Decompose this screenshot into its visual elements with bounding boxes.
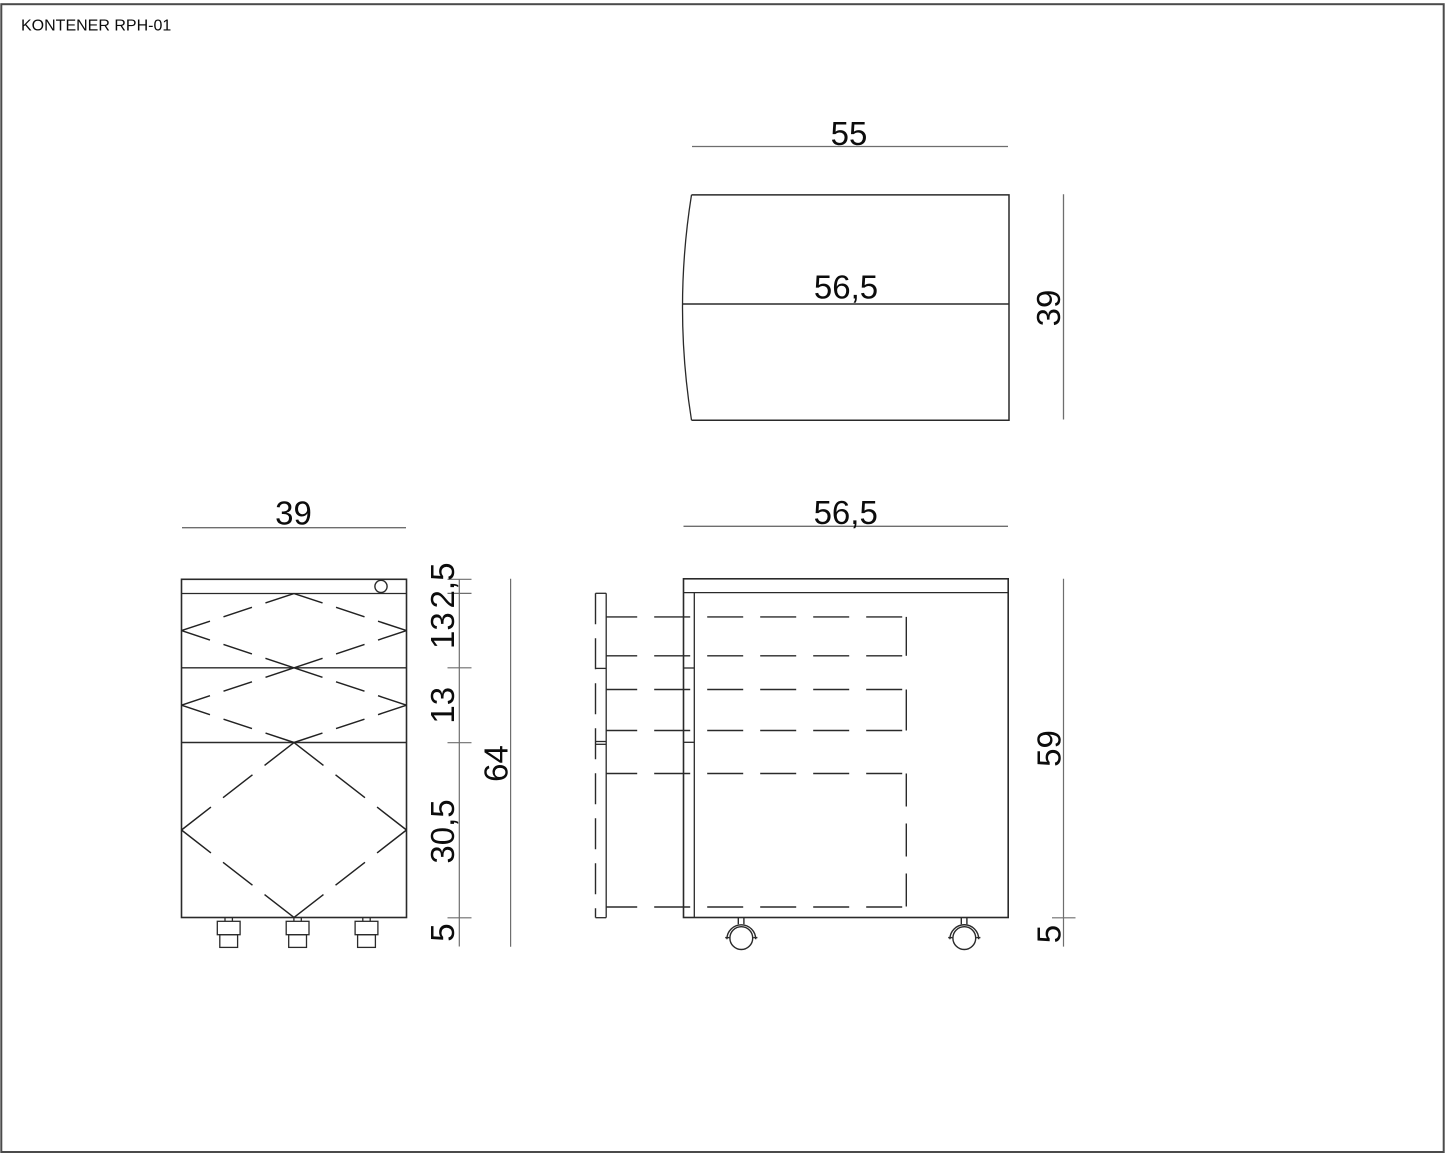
svg-text:55: 55 [831, 115, 868, 152]
svg-text:30,5: 30,5 [424, 799, 461, 863]
svg-text:5: 5 [1031, 925, 1068, 943]
svg-text:56,5: 56,5 [814, 494, 878, 531]
svg-text:13: 13 [424, 612, 461, 649]
svg-text:2,5: 2,5 [424, 563, 461, 609]
svg-text:56,5: 56,5 [814, 269, 878, 306]
svg-text:39: 39 [1030, 290, 1067, 327]
svg-text:5: 5 [424, 923, 461, 941]
svg-text:KONTENER RPH-01: KONTENER RPH-01 [21, 18, 171, 35]
svg-text:64: 64 [478, 745, 515, 782]
svg-text:39: 39 [275, 495, 312, 532]
svg-text:13: 13 [424, 687, 461, 724]
svg-text:59: 59 [1031, 730, 1068, 767]
